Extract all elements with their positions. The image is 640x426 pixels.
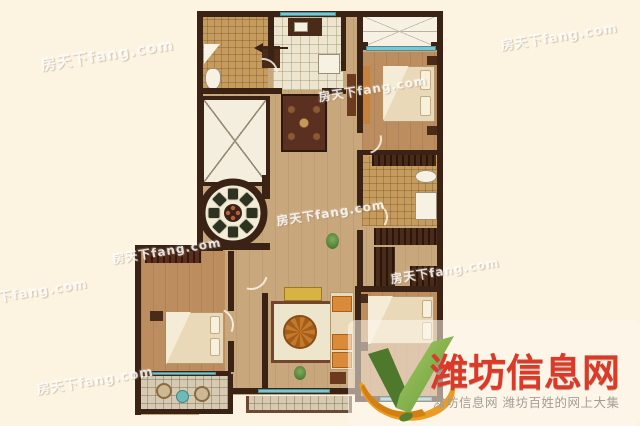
entry-arrow-icon [254,43,263,53]
blanket-fold [166,312,200,364]
balcony-rail [246,410,352,413]
pillow [422,300,432,318]
window [280,12,336,16]
closet-wardrobe [374,228,437,245]
window [152,372,216,375]
floorplan-image: 房天下fang.com 房天下fang.com 房天下fang.com 房天下f… [0,0,640,426]
wall [135,245,141,415]
bench [284,287,322,301]
bathroom-door-panel [204,44,220,64]
wall [197,88,282,94]
plant-icon [294,366,306,380]
wall [262,293,268,390]
wall [228,341,234,372]
watermark-text: 房天下fang.com [499,17,619,54]
kitchen-appliance [318,54,340,74]
plant-icon [326,233,339,249]
balcony-chair-icon [194,386,210,402]
wall [268,11,274,63]
coffee-table [283,315,317,349]
pillow [420,96,431,116]
elevator-shaft [200,96,270,186]
wall [228,251,234,311]
site-logo-title: 潍坊信息网 [430,342,620,397]
wall [357,11,363,133]
site-logo-subtitle: 潍坊信息网 潍坊百姓的网上大集 [433,392,619,411]
wall [341,11,346,71]
balcony-rail [246,396,249,411]
kitchen-sink-icon [294,22,308,32]
sofa-cushion [332,296,352,312]
shower-icon [415,192,437,220]
nightstand [150,311,163,321]
toilet-icon [205,68,221,90]
bay-window [358,13,441,50]
watermark-text: 房天下fang.com [0,273,89,310]
wall [355,286,443,292]
sink-icon [415,170,437,183]
side-table [330,372,346,384]
balcony-chair-icon [156,383,172,399]
wall [197,11,203,183]
entry-arrow-line [262,47,288,49]
wall [228,374,233,414]
window [258,389,330,393]
window [366,46,436,51]
wall [135,409,232,414]
watermark-text: 房天下fang.com [39,34,175,76]
balcony-table-icon [176,390,189,403]
wall [357,230,363,288]
